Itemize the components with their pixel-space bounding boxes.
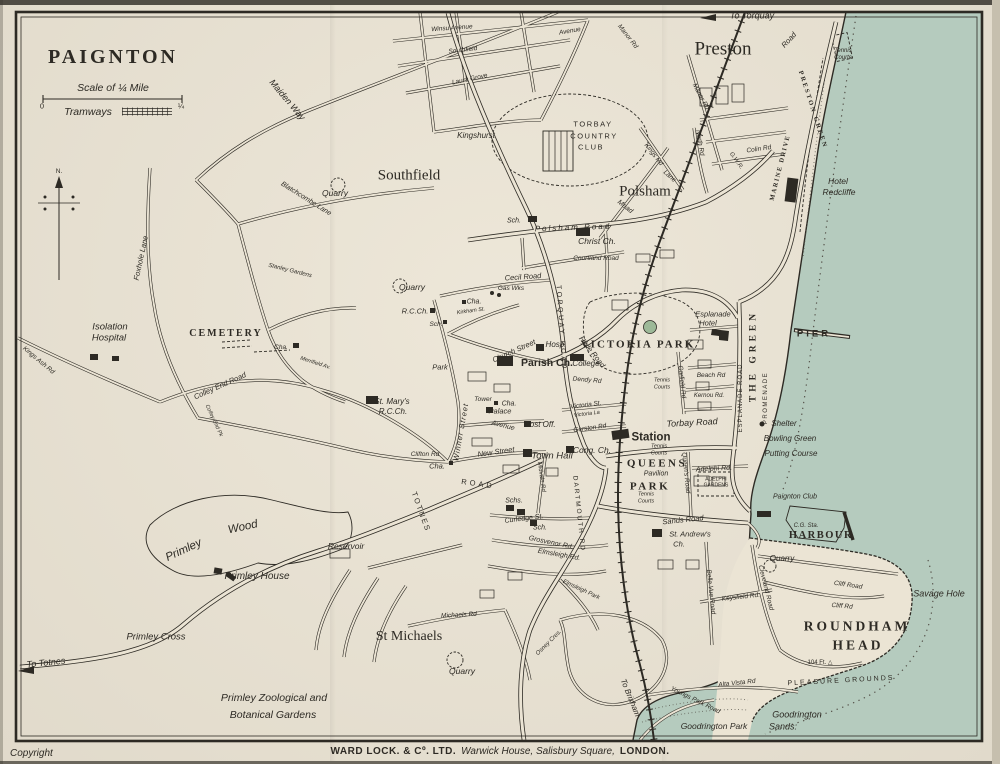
building-st-andrews xyxy=(652,529,662,537)
map-page: PAIGNTONScale of ¼ Mile0¼TramwaysN.To To… xyxy=(0,0,1000,764)
building-st-marys xyxy=(366,396,378,404)
building-esplanade-hotel xyxy=(711,329,729,341)
building-christ-church xyxy=(576,228,590,236)
publisher-imprint: WARD LOCK. & Cº. LTD. Warwick House, Sal… xyxy=(0,746,1000,757)
building-post-office xyxy=(524,421,531,427)
building-station xyxy=(611,429,629,440)
tramway-symbol xyxy=(122,109,172,115)
main-road-fills xyxy=(20,13,836,740)
compass-rose xyxy=(38,176,80,280)
cemetery-rows xyxy=(222,340,290,352)
map-canvas xyxy=(0,0,1000,764)
building-college xyxy=(570,354,584,361)
building-congregational-church xyxy=(566,446,574,453)
to-torquay-arrow xyxy=(700,14,716,21)
building-palace xyxy=(486,407,493,413)
publisher-name: WARD LOCK. & Cº. LTD. xyxy=(331,746,457,757)
primley-wood-outline xyxy=(146,495,352,576)
scan-edge-top xyxy=(0,0,1000,5)
torbay-country-club-building xyxy=(543,131,573,171)
publisher-address: Warwick House, Salisbury Square, xyxy=(461,746,615,757)
victoria-park-pond xyxy=(644,321,657,334)
building-paignton-club xyxy=(757,511,771,517)
building-parish-church xyxy=(497,356,513,366)
publisher-city: LONDON. xyxy=(620,746,670,757)
building-hotel-redcliffe xyxy=(785,177,799,202)
scale-bar xyxy=(43,95,182,103)
building-town-hall xyxy=(523,449,532,457)
shelter-dot xyxy=(760,422,765,427)
main-road-casings xyxy=(20,13,836,740)
scan-edge-left xyxy=(0,0,3,764)
scan-edge-right xyxy=(992,0,1000,764)
building-hospital xyxy=(536,344,544,351)
